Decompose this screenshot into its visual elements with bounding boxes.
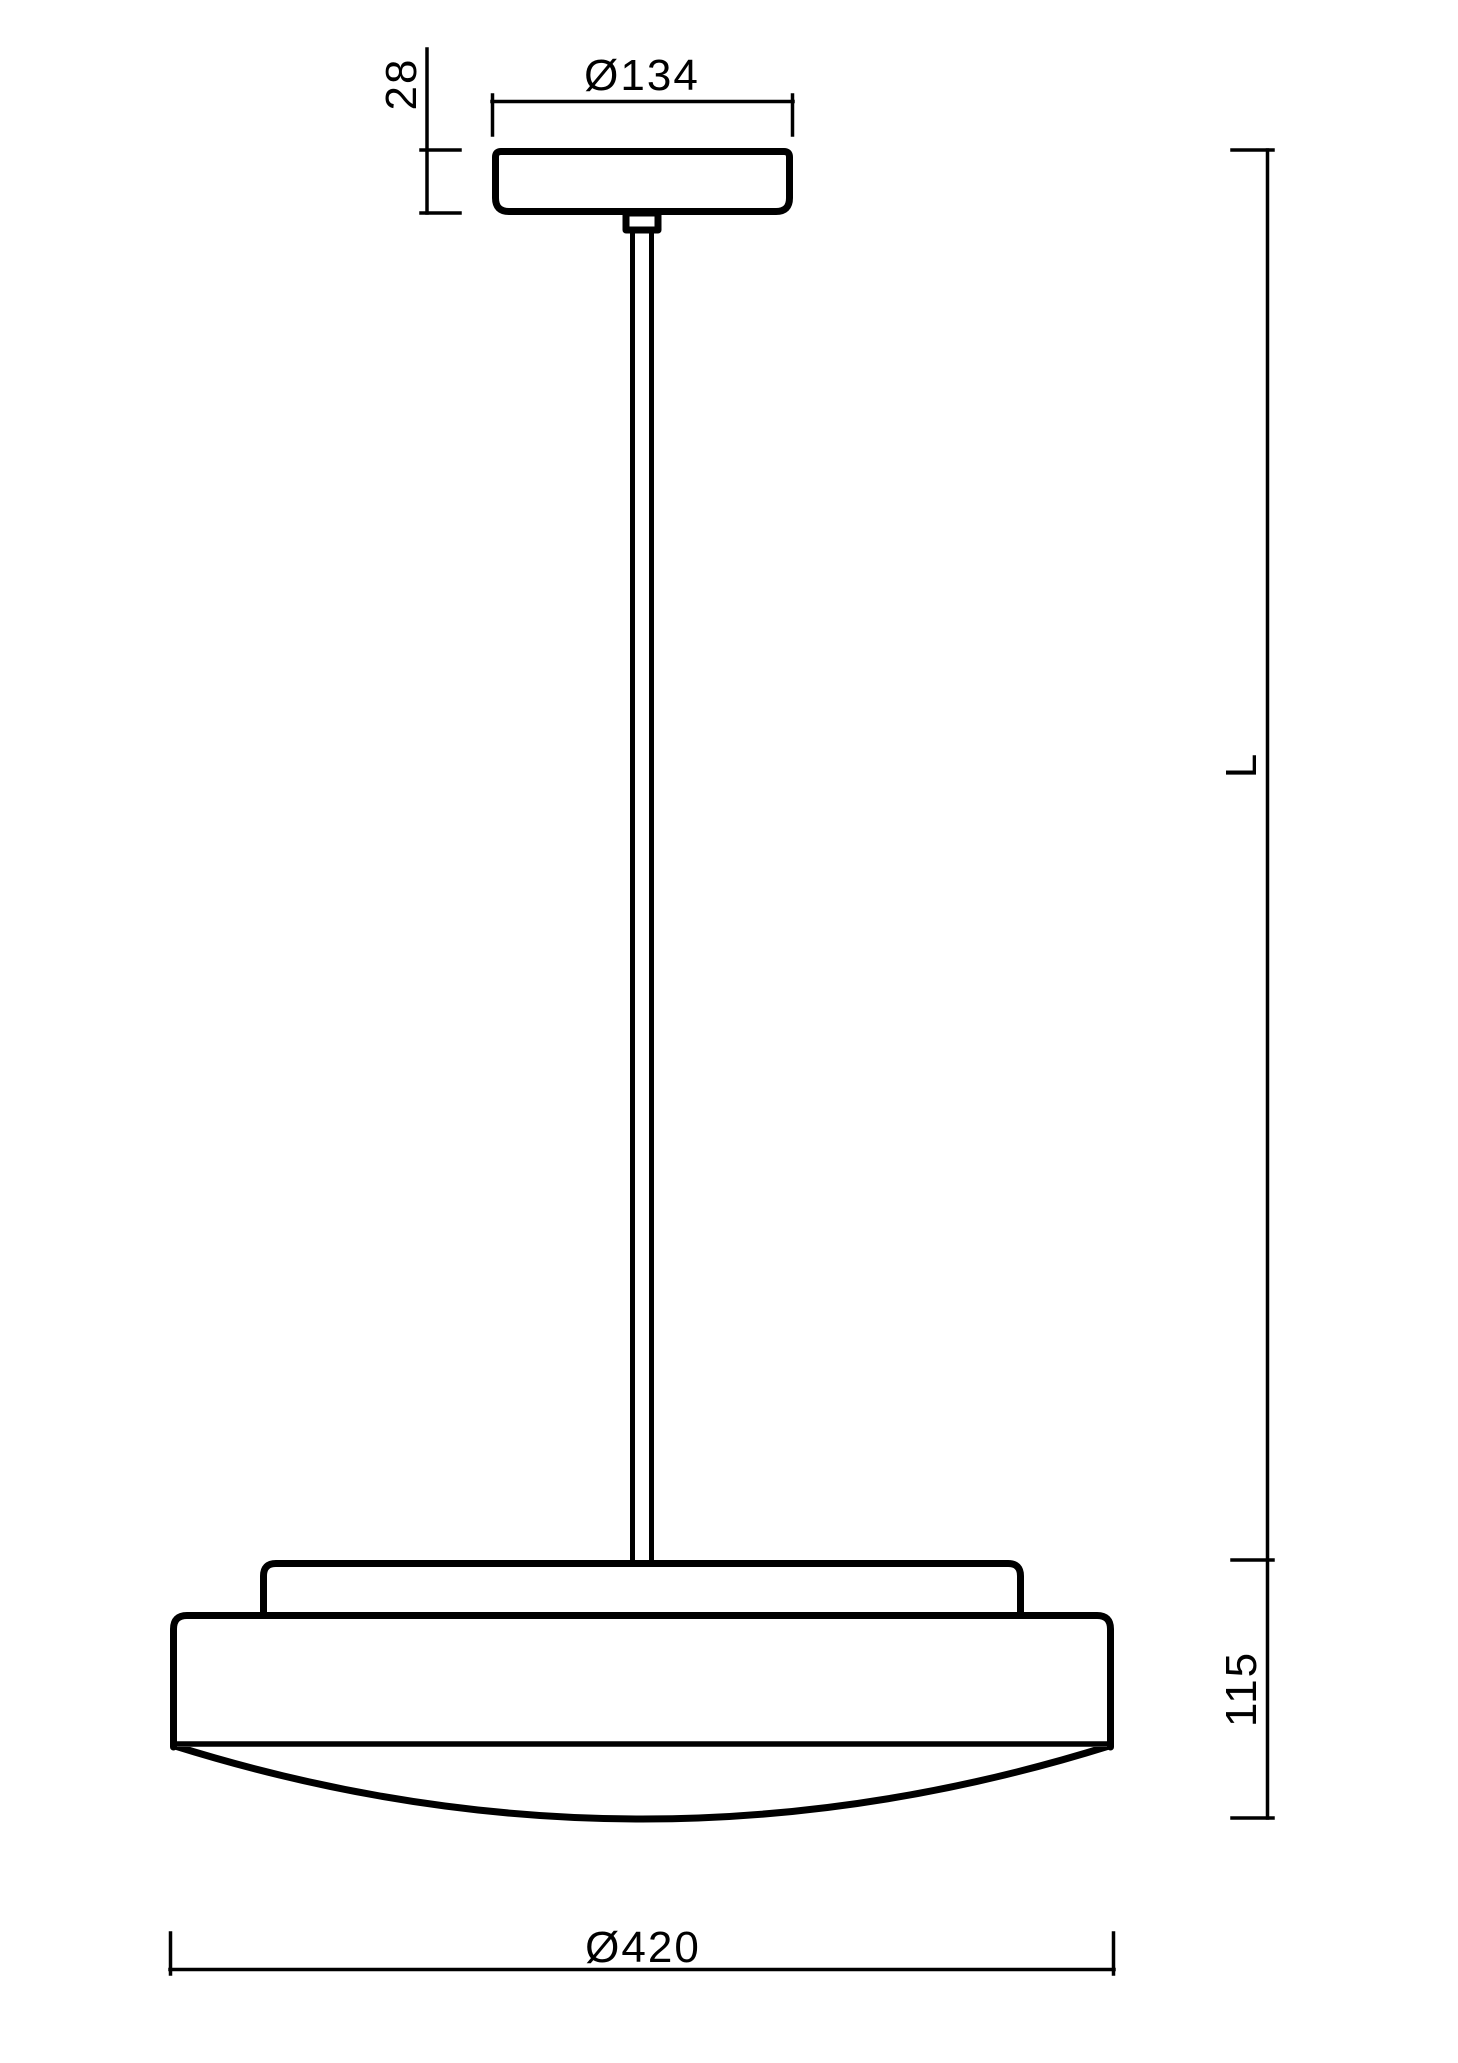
dim-420-label: Ø420 <box>585 1923 701 1972</box>
canopy-outline <box>496 152 790 212</box>
dim-L-label: L <box>1217 752 1266 778</box>
pendant-lamp-dimension-drawing: 28 Ø134 L 115 Ø420 <box>0 0 1458 2063</box>
mounting-plate-outline <box>264 1564 1021 1620</box>
technical-drawing-canvas: 28 Ø134 L 115 Ø420 <box>0 0 1458 2063</box>
dim-115-label: 115 <box>1217 1651 1266 1727</box>
canopy-stem-connector <box>626 213 658 230</box>
diffuser-body-outline <box>174 1616 1111 1748</box>
dim-28-label: 28 <box>377 58 426 111</box>
diffuser-glass-curve <box>175 1746 1109 1819</box>
dim-134-label: Ø134 <box>584 51 700 100</box>
